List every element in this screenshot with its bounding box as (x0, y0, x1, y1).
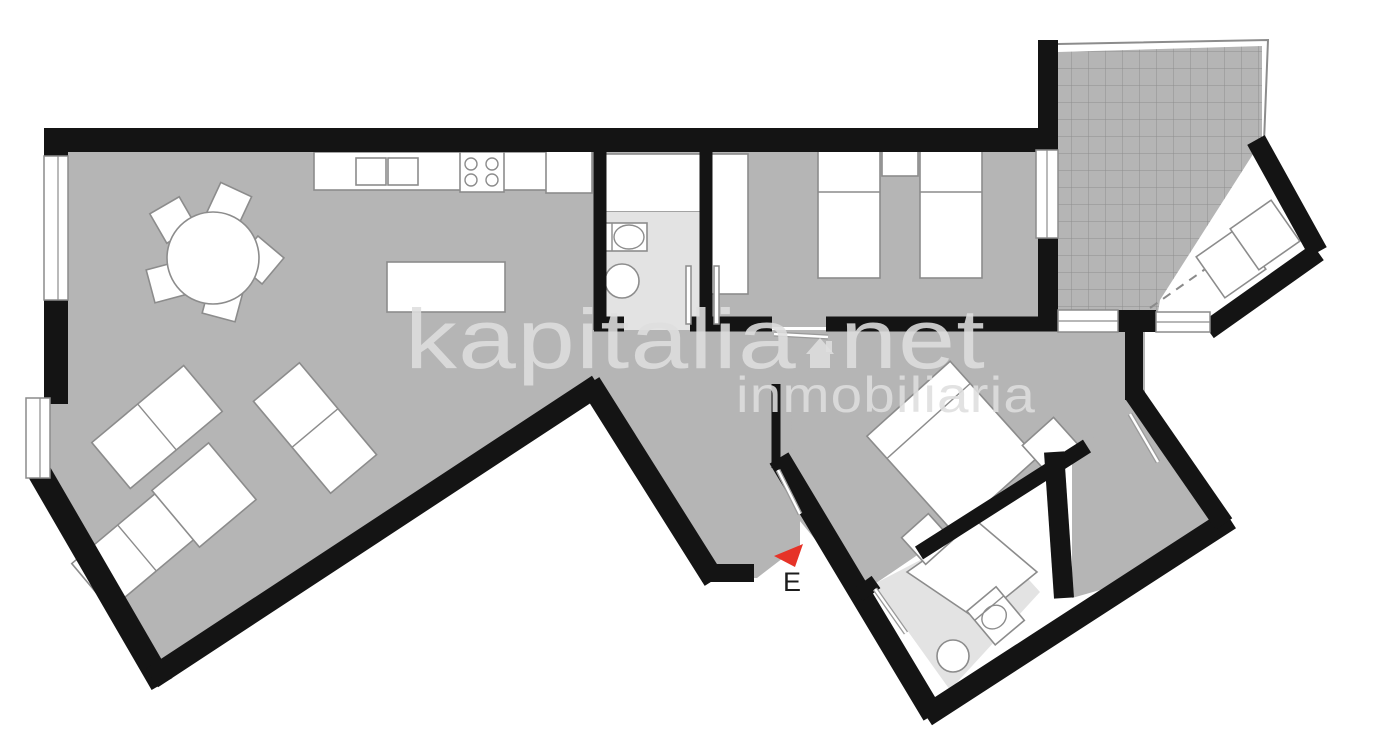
sink-icon (601, 223, 647, 251)
dressing-room-wall (1054, 452, 1064, 598)
floor-plan-svg: E kapitalia net inmobiliaria (0, 0, 1400, 733)
terrace (1058, 40, 1300, 312)
tagline-text: inmobiliaria (736, 367, 1036, 423)
window (44, 156, 68, 300)
nightstand (882, 150, 918, 176)
dining-table (167, 212, 259, 304)
fridge (546, 150, 592, 193)
single-bed (920, 150, 982, 278)
toilet-icon (937, 640, 969, 672)
floor-plan-page: E kapitalia net inmobiliaria (0, 0, 1400, 733)
window (26, 398, 50, 478)
window (1156, 312, 1210, 332)
single-bed (818, 150, 880, 278)
window (1058, 310, 1118, 332)
entrance-label: E (783, 567, 801, 597)
cooktop-icon (460, 152, 504, 192)
shower-1 (603, 154, 703, 212)
window (1036, 150, 1058, 238)
